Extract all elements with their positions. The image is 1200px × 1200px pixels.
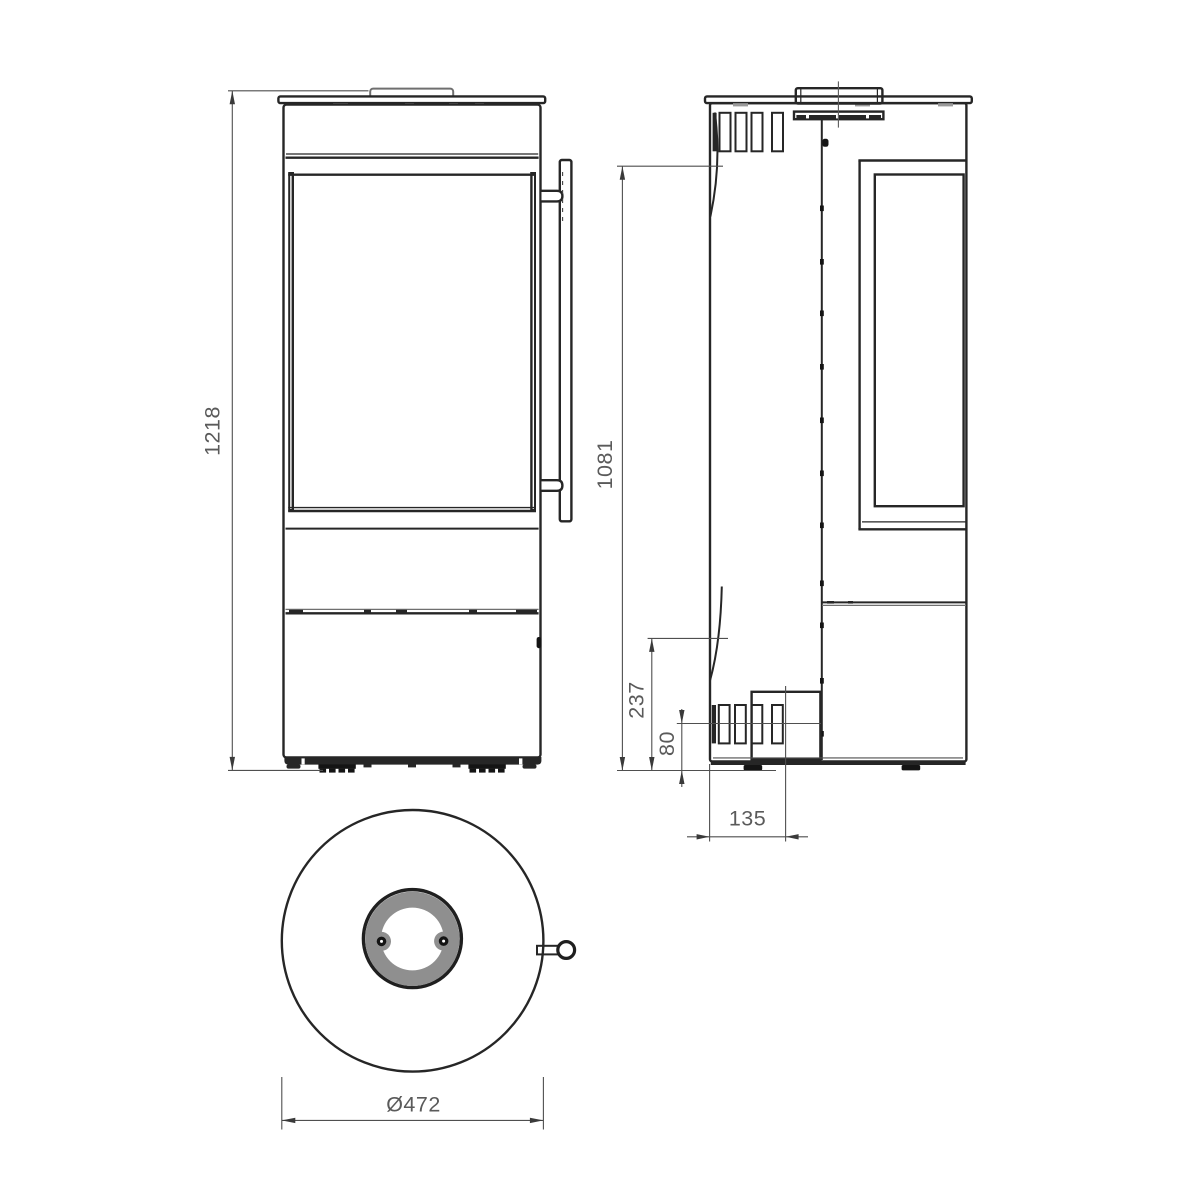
top-flue-collar <box>363 890 461 988</box>
front-body <box>284 105 541 758</box>
stove-three-view-drawing: 1218 <box>0 0 1200 1200</box>
side-view: 1081 237 80 135 <box>593 81 972 841</box>
front-handle-rod <box>560 160 572 521</box>
front-view: 1218 <box>201 89 572 773</box>
technical-drawing-page: 1218 <box>0 0 1200 1200</box>
front-handle-stub-upper <box>542 191 563 202</box>
dim-front-height-label: 1218 <box>201 406 225 456</box>
dim-side-intake-height-label: 80 <box>655 731 679 756</box>
dim-top-diameter-label: Ø472 <box>386 1093 441 1117</box>
front-handle-stub-lower <box>542 480 563 491</box>
side-feet <box>744 765 921 770</box>
dim-top-diameter: Ø472 <box>282 1077 544 1130</box>
front-handle <box>542 160 572 521</box>
front-latch-nub <box>537 637 542 648</box>
dim-side-intake-offset-label: 135 <box>729 807 766 831</box>
dim-side-body-height: 1081 <box>593 166 723 770</box>
dim-side-lower-zone-label: 237 <box>625 681 649 718</box>
dim-side-body-height-label: 1081 <box>593 440 617 490</box>
top-view: Ø472 <box>282 810 575 1130</box>
front-top-plate <box>278 96 545 103</box>
top-handle-ring <box>558 942 575 959</box>
side-rear-recess <box>858 161 966 530</box>
